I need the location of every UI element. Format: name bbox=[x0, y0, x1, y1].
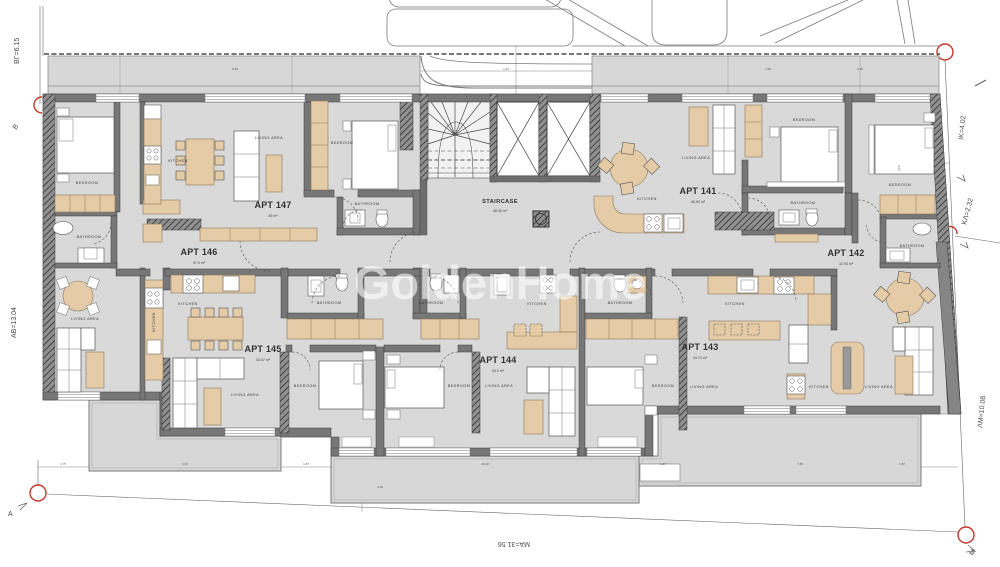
svg-text:1.51: 1.51 bbox=[503, 67, 509, 71]
svg-text:ΜΑ=31.56: ΜΑ=31.56 bbox=[498, 540, 530, 547]
svg-text:LIVING AREA: LIVING AREA bbox=[255, 136, 283, 140]
svg-text:APT 144: APT 144 bbox=[480, 355, 517, 365]
svg-text:1.87: 1.87 bbox=[899, 462, 905, 466]
svg-text:APT 145: APT 145 bbox=[245, 344, 282, 354]
svg-text:LIVING AREA: LIVING AREA bbox=[231, 393, 259, 397]
svg-text:44.2 m²: 44.2 m² bbox=[492, 369, 505, 373]
svg-text:ΑΒ=13.04: ΑΒ=13.04 bbox=[11, 307, 18, 338]
svg-text:GoldenHome: GoldenHome bbox=[354, 256, 646, 309]
svg-text:BEDROOM: BEDROOM bbox=[652, 384, 674, 388]
svg-text:BEDROOM: BEDROOM bbox=[889, 183, 911, 187]
svg-text:LIVING AREA: LIVING AREA bbox=[690, 385, 718, 389]
svg-text:KITCHEN: KITCHEN bbox=[725, 302, 744, 306]
svg-text:BATHROOM: BATHROOM bbox=[77, 235, 102, 239]
svg-text:1.87: 1.87 bbox=[303, 462, 309, 466]
svg-text:ΒΓ=6.15: ΒΓ=6.15 bbox=[14, 38, 21, 64]
svg-text:44.74 m²: 44.74 m² bbox=[693, 356, 708, 360]
svg-text:46.92 m²: 46.92 m² bbox=[691, 200, 706, 204]
svg-text:10.48: 10.48 bbox=[481, 462, 489, 466]
svg-text:2.20: 2.20 bbox=[377, 485, 383, 489]
svg-text:BATHROOM: BATHROOM bbox=[791, 201, 816, 205]
svg-text:BEDROOM: BEDROOM bbox=[294, 384, 316, 388]
svg-text:APT 147: APT 147 bbox=[255, 200, 292, 210]
svg-text:0.35: 0.35 bbox=[857, 67, 863, 71]
svg-text:APT 142: APT 142 bbox=[828, 248, 865, 258]
svg-text:6.00: 6.00 bbox=[182, 462, 188, 466]
svg-text:APT 143: APT 143 bbox=[682, 342, 719, 352]
svg-text:Α: Α bbox=[8, 511, 13, 518]
svg-text:BEDROOM: BEDROOM bbox=[76, 181, 98, 185]
svg-text:STAIRCASE: STAIRCASE bbox=[482, 199, 518, 205]
svg-text:1.87: 1.87 bbox=[660, 462, 666, 466]
svg-text:LIVING AREA: LIVING AREA bbox=[682, 156, 710, 160]
svg-text:8.90: 8.90 bbox=[232, 67, 238, 71]
svg-text:LIVING AREA: LIVING AREA bbox=[865, 385, 893, 389]
svg-text:1.75: 1.75 bbox=[60, 462, 66, 466]
svg-text:4.05: 4.05 bbox=[897, 165, 901, 171]
svg-text:47.0 m²: 47.0 m² bbox=[193, 261, 206, 265]
svg-text:BATHROOM: BATHROOM bbox=[317, 301, 342, 305]
svg-text:APT 141: APT 141 bbox=[680, 186, 717, 196]
svg-text:3.68: 3.68 bbox=[765, 67, 771, 71]
svg-text:BATHROOM: BATHROOM bbox=[355, 202, 380, 206]
svg-text:LIVING AREA: LIVING AREA bbox=[71, 317, 99, 321]
svg-text:43.47 m²: 43.47 m² bbox=[256, 358, 271, 362]
svg-text:KITCHEN: KITCHEN bbox=[637, 197, 656, 201]
svg-text:BEDROOM: BEDROOM bbox=[448, 384, 470, 388]
svg-text:LIVING AREA: LIVING AREA bbox=[485, 384, 513, 388]
svg-text:49 m²: 49 m² bbox=[268, 214, 278, 218]
svg-text:KITCHEN: KITCHEN bbox=[809, 385, 828, 389]
svg-text:KITCHEN: KITCHEN bbox=[152, 312, 156, 331]
svg-text:48.35 m²: 48.35 m² bbox=[493, 209, 508, 213]
svg-text:BEDROOM: BEDROOM bbox=[793, 118, 815, 122]
svg-text:KITCHEN: KITCHEN bbox=[178, 302, 197, 306]
svg-text:KITCHEN: KITCHEN bbox=[168, 159, 187, 163]
svg-text:7.85: 7.85 bbox=[797, 462, 803, 466]
svg-text:32.93 m²: 32.93 m² bbox=[839, 262, 854, 266]
svg-text:BEDROOM: BEDROOM bbox=[331, 141, 353, 145]
svg-text:APT 146: APT 146 bbox=[181, 247, 218, 257]
svg-text:BATHROOM: BATHROOM bbox=[900, 244, 925, 248]
